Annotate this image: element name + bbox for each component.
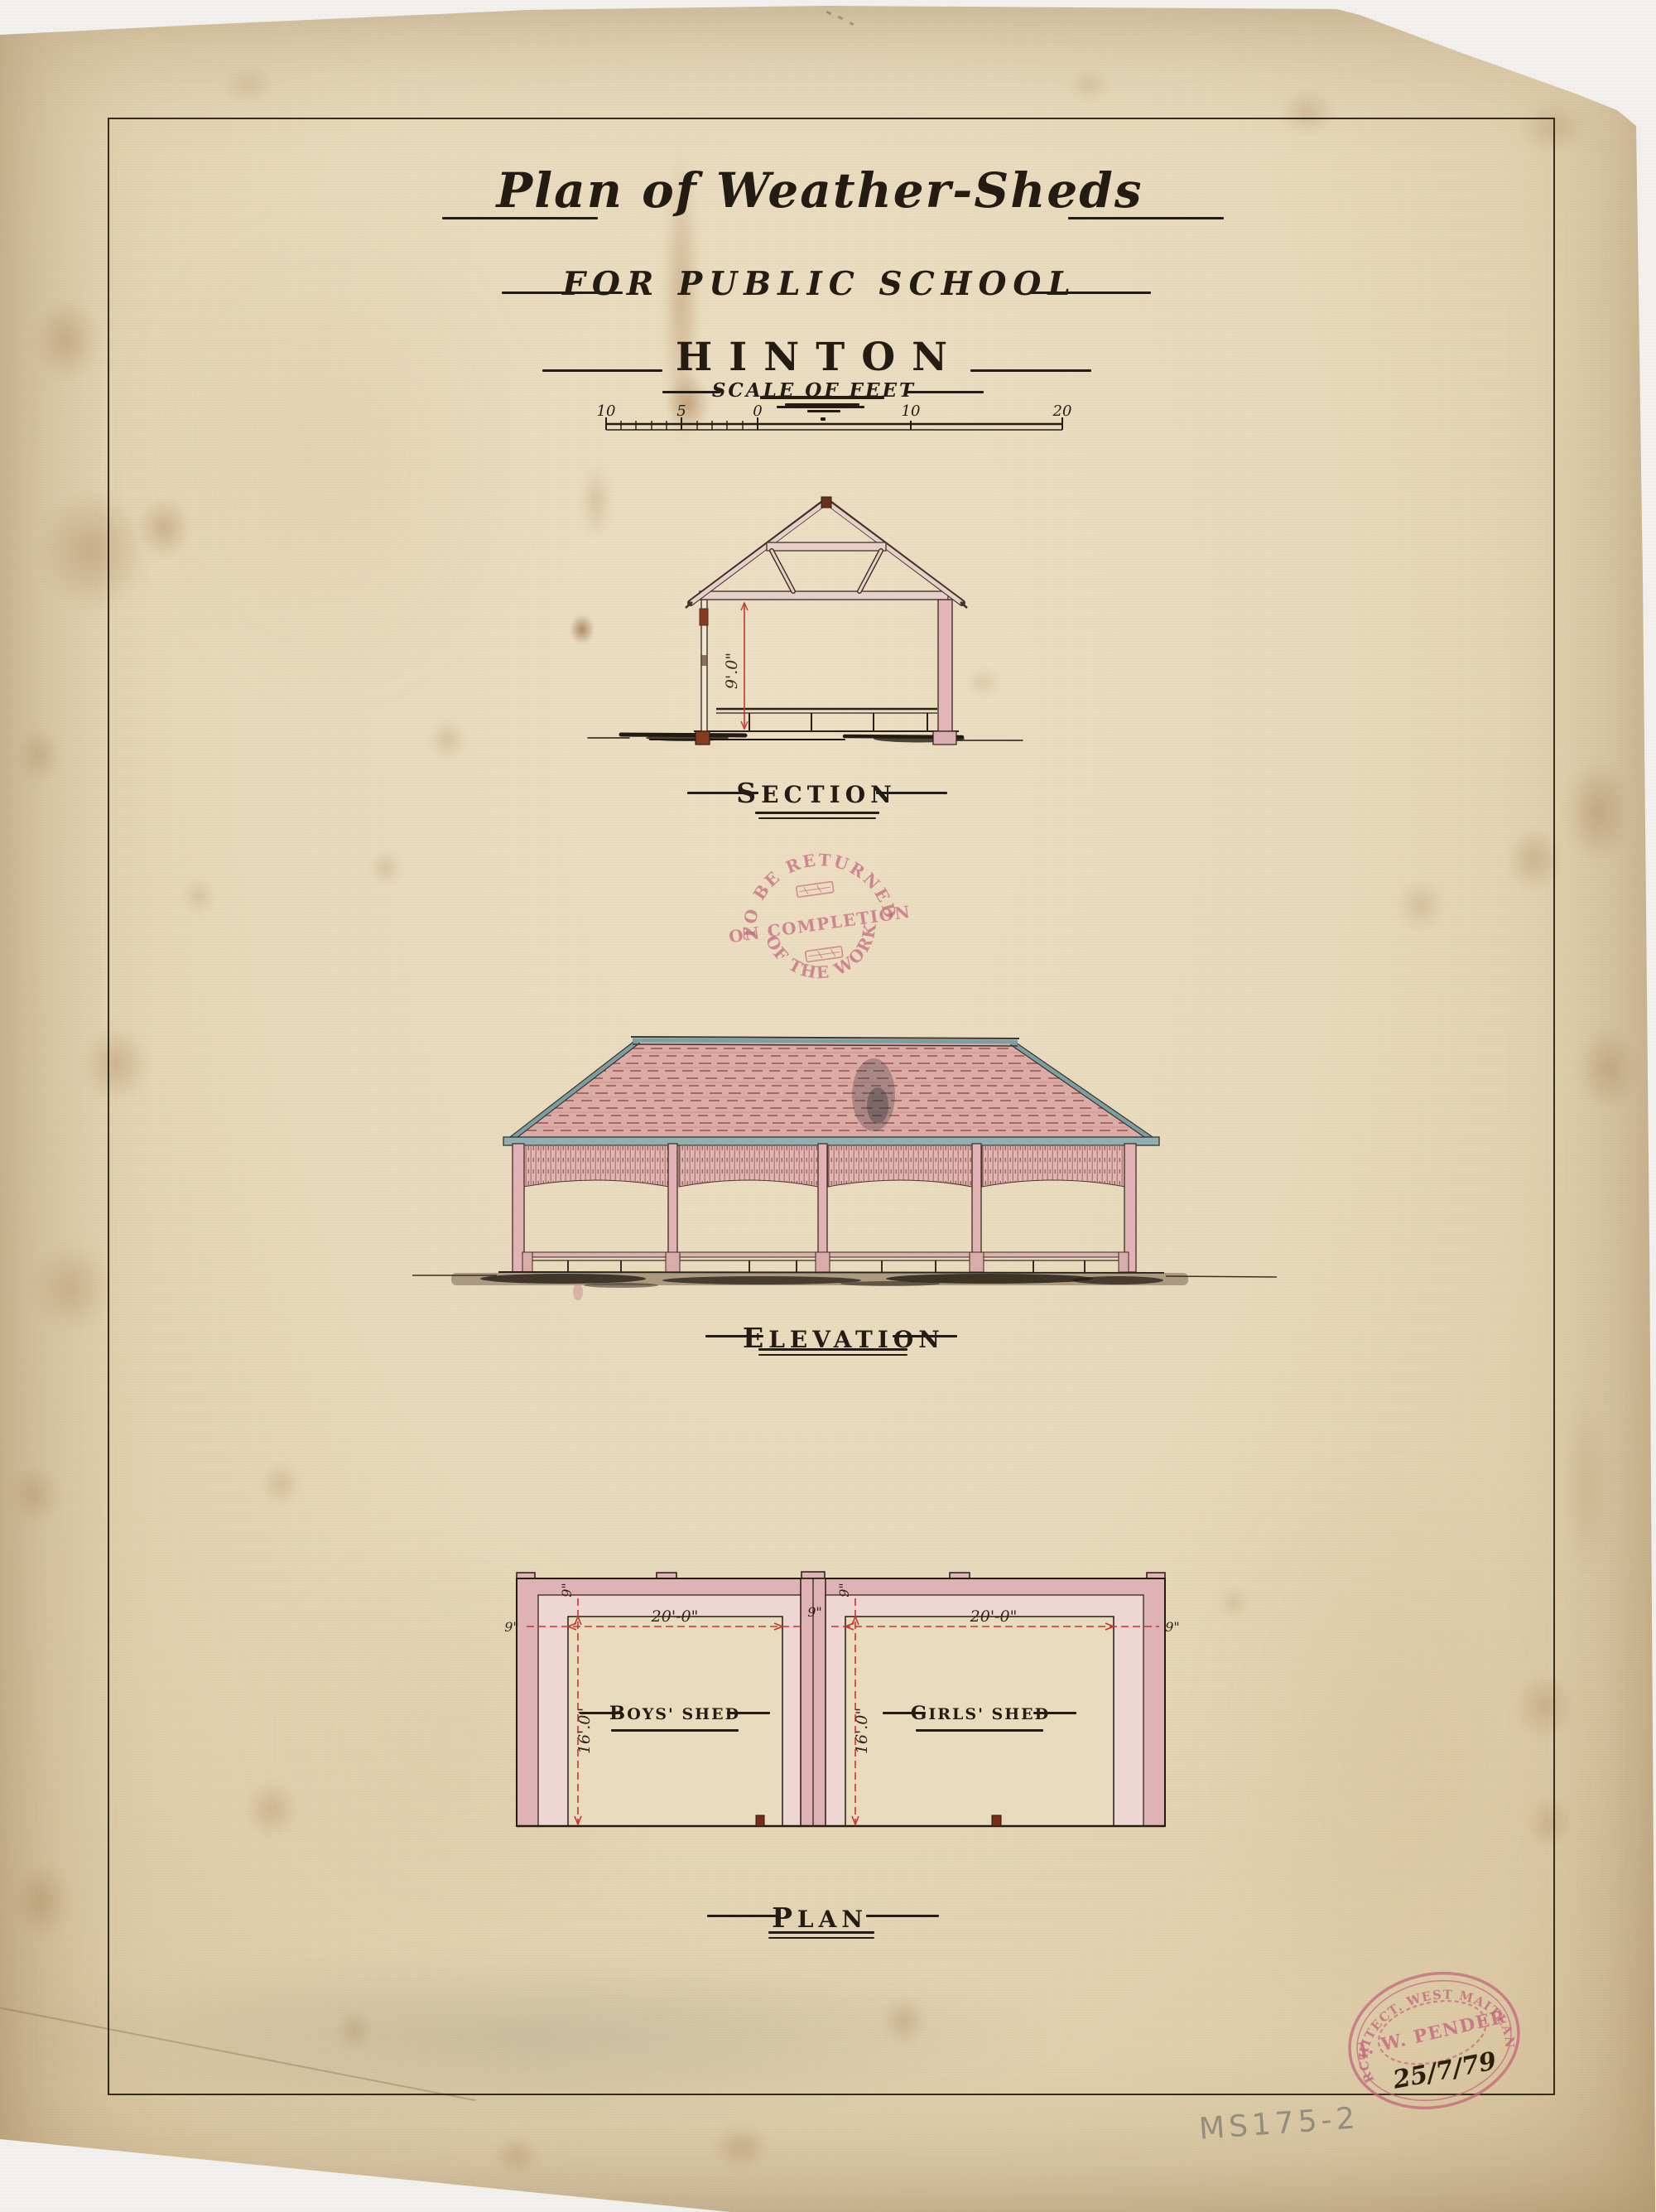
wall-thickness-dim: 9" xyxy=(559,1583,575,1598)
scale-tick-label: 20 xyxy=(1052,402,1072,420)
scale-bar: 10 5 0 10 20 xyxy=(592,402,1076,441)
section-label-dash xyxy=(876,792,947,794)
title-rule xyxy=(970,369,1091,372)
elevation-drawing xyxy=(406,1027,1283,1317)
section-height-dimension xyxy=(741,603,748,729)
title-rule xyxy=(1068,217,1224,219)
elevation-label-underline xyxy=(758,1348,907,1351)
plan-label-underline xyxy=(768,1931,874,1934)
scale-tick-label: 10 xyxy=(902,402,921,420)
elevation-roof xyxy=(503,1037,1159,1145)
title-rule xyxy=(502,292,623,294)
fold-crease xyxy=(1356,0,1582,63)
title-rule xyxy=(1031,292,1151,294)
scale-tick-label: 5 xyxy=(676,402,686,420)
section-label: SECTION xyxy=(734,777,899,809)
section-roof-truss xyxy=(686,497,967,608)
section-label-underline xyxy=(758,817,876,819)
plan-post-mark xyxy=(756,1815,764,1826)
plan-walls xyxy=(517,1572,1165,1826)
wall-thickness-dim: 9" xyxy=(807,1604,822,1620)
section-height-value: 9'.0" xyxy=(723,653,741,689)
eaves-fascia xyxy=(503,1137,1159,1145)
sheet-title: Plan of Weather-Sheds xyxy=(455,162,1184,219)
girls-depth-dim: 16'.0" xyxy=(853,1708,871,1754)
boys-width-dim: 20'-0" xyxy=(651,1607,699,1626)
paper-sheet: Plan of Weather-Sheds For Public School … xyxy=(0,0,1656,2212)
elevation-label-dash xyxy=(705,1335,763,1337)
plan-drawing: 20'-0" 20'-0" 9" 9" 9" 9" 9" 16'.0" 16'.… xyxy=(497,1565,1192,1839)
boys-depth-dim: 16'.0" xyxy=(575,1708,594,1754)
wall-thickness-dim: 9" xyxy=(836,1583,852,1598)
architect-stamp-date: 25/7/79 xyxy=(1390,2046,1500,2095)
scale-title-rule xyxy=(662,391,720,393)
scale-tick-label: 10 xyxy=(597,402,616,420)
scanned-drawing-sheet: Plan of Weather-Sheds For Public School … xyxy=(0,0,1656,2212)
plan-label-underline xyxy=(768,1937,874,1939)
scale-tick-label: 0 xyxy=(753,402,762,420)
section-bench xyxy=(694,709,959,731)
title-rule xyxy=(442,217,598,219)
plan-post-mark xyxy=(992,1815,1001,1826)
sheet-town: HINTON xyxy=(455,335,1184,380)
title-rule xyxy=(542,369,662,372)
plan-label-dash xyxy=(707,1915,777,1917)
room-label-dash xyxy=(580,1712,623,1714)
plan-label: PLAN xyxy=(737,1901,903,1934)
section-label-dash xyxy=(687,792,758,794)
wall-thickness-dim: 9" xyxy=(1165,1619,1180,1635)
elevation-label-dash xyxy=(893,1335,957,1337)
wall-thickness-dim: 9" xyxy=(504,1619,519,1635)
return-stamp: TO BE RETURNED ON COMPLETION OF THE WORK xyxy=(724,824,923,1027)
elevation-ground xyxy=(412,1272,1277,1300)
section-ground xyxy=(588,735,1023,743)
scale-title-rule xyxy=(906,391,984,393)
elevation-label-underline xyxy=(758,1354,907,1356)
section-label-underline xyxy=(755,812,879,814)
room-label-dash xyxy=(727,1712,770,1714)
sheet-subtitle: For Public School xyxy=(455,265,1184,303)
elevation-bench xyxy=(522,1252,1129,1272)
girls-width-dim: 20'-0" xyxy=(970,1607,1018,1626)
catalog-number: MS175-2 xyxy=(1198,2101,1360,2146)
section-drawing: 9'.0" xyxy=(571,493,1035,766)
room-label-dash xyxy=(1033,1712,1076,1714)
plan-label-dash xyxy=(866,1915,939,1917)
room-label-underline xyxy=(916,1729,1043,1732)
room-label-dash xyxy=(883,1712,926,1714)
room-label-underline xyxy=(611,1729,739,1732)
